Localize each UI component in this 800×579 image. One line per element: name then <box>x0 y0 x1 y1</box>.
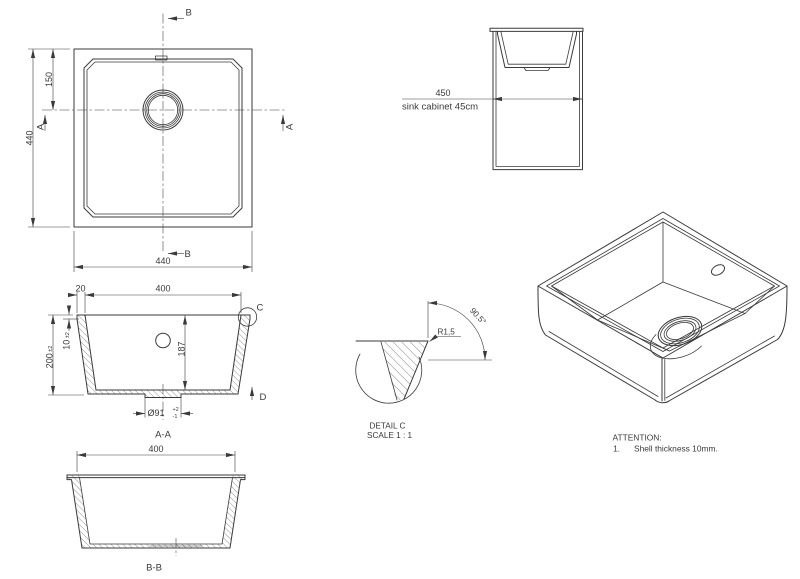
sink-body-outline <box>498 31 577 67</box>
dim-inner-width-400: 400 <box>155 284 170 294</box>
top-view: B B A A 440 150 440 <box>25 8 296 273</box>
dim-200-tolerance: ±2 <box>48 346 54 352</box>
iso-drain-ring-2 <box>657 314 702 349</box>
attention-title: ATTENTION: <box>613 433 662 443</box>
iso-body-left-inner <box>549 332 658 397</box>
radius-leader <box>430 337 462 342</box>
dim-cabinet-450: 450 <box>435 88 450 98</box>
rim-top-lines <box>67 475 245 478</box>
dim-width-440: 440 <box>155 256 170 266</box>
detail-c-marker: C <box>257 303 264 314</box>
detail-c-scale: SCALE 1 : 1 <box>367 431 413 440</box>
iso-body-right-inner <box>666 336 775 398</box>
isometric-view <box>538 212 787 403</box>
section-b-label-top: B <box>186 8 192 19</box>
dim-drain-offset-150: 150 <box>44 72 54 87</box>
dim-10-tolerance: ±2 <box>65 332 71 338</box>
dim-drain-tol-plus: +2 <box>173 407 179 413</box>
sink-body-inner-line <box>501 31 573 64</box>
sink-technical-drawing-page: B B A A 440 150 440 450 sink cabinet 45c… <box>0 0 800 579</box>
iso-drain <box>654 311 705 351</box>
shell-outer-profile <box>77 315 250 398</box>
cabinet-outer-outline <box>493 31 583 169</box>
attention-note: ATTENTION: 1. Shell thickness 10mm. <box>613 433 718 454</box>
attention-item-text: Shell thickness 10mm. <box>634 444 718 454</box>
shell-outer-profile-bb <box>67 475 245 548</box>
section-a-label-right: A <box>285 123 296 130</box>
section-aa: 20 400 200±2 10±2 187 Ø91 +2 -1 C D A-A <box>45 284 267 441</box>
section-bb: 400 B-B <box>67 444 245 574</box>
iso-rim-outer <box>538 212 787 358</box>
section-aa-title: A-A <box>155 430 172 441</box>
cabinet-view: 450 sink cabinet 45cm <box>402 28 583 169</box>
extension-lines-bb <box>77 451 235 472</box>
radius-value: R1,5 <box>438 328 456 337</box>
direction-d-label: D <box>260 392 267 403</box>
dim-rim-thickness-10: 10±2 <box>62 332 72 350</box>
dim-bb-400: 400 <box>148 444 163 454</box>
iso-drain-ring-1 <box>654 311 705 351</box>
overflow-hole <box>156 333 171 348</box>
cabinet-caption: sink cabinet 45cm <box>402 102 478 113</box>
detail-c-view: 90.5° R1,5 DETAIL C SCALE 1 : 1 <box>356 301 492 440</box>
dim-height-200: 200±2 <box>45 346 55 369</box>
technical-drawing-canvas: B B A A 440 150 440 450 sink cabinet 45c… <box>0 0 800 579</box>
shell-hatching <box>77 315 250 398</box>
shell-hatching-right <box>222 475 245 548</box>
shell-hatching-left <box>67 475 90 548</box>
dim-10-value: 10 <box>62 340 72 350</box>
countertop <box>490 28 583 31</box>
dim-drain-diameter: Ø91 <box>148 408 165 418</box>
attention-item-number: 1. <box>613 444 620 454</box>
iso-overflow-hole <box>710 263 727 278</box>
bowl-inner-profile-bb <box>80 478 233 544</box>
dim-200-value: 200 <box>45 353 55 368</box>
section-a-label-left: A <box>36 123 47 130</box>
detail-c-title: DETAIL C <box>370 422 406 431</box>
dim-rim-20: 20 <box>75 284 85 294</box>
section-bb-title: B-B <box>146 563 162 574</box>
detail-hatching <box>381 342 428 401</box>
angle-value: 90.5° <box>468 306 488 326</box>
iso-body-right-edge <box>668 287 787 402</box>
bowl-inner-profile <box>85 315 241 390</box>
dim-drain-tol-minus: -1 <box>173 414 178 420</box>
section-b-label-bottom: B <box>185 249 191 260</box>
dim-height-440: 440 <box>25 130 35 145</box>
dim-depth-187: 187 <box>177 341 187 356</box>
iso-bowl-corner-edges <box>552 222 775 351</box>
